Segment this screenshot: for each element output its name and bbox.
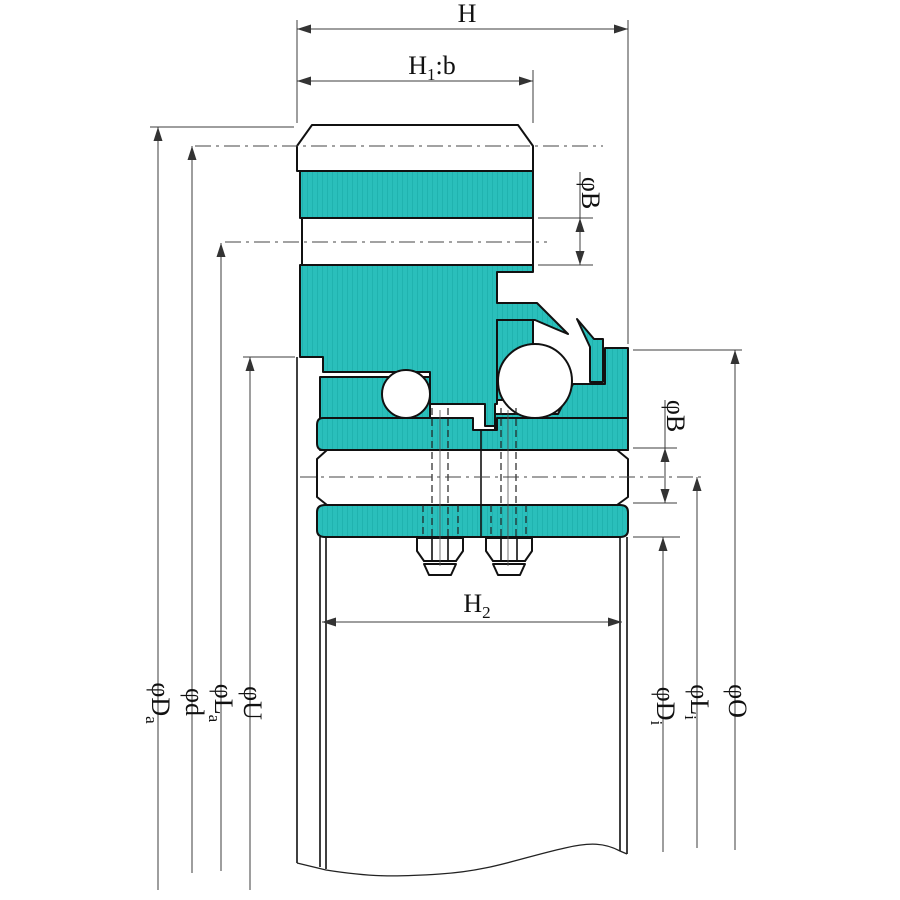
- dimension-phi-b-bottom: φB: [633, 400, 690, 503]
- dim-label-phi-b-bottom: φB: [661, 400, 690, 432]
- dim-label-h1-b: H1:b: [408, 51, 456, 84]
- dimension-h1-b: H1:b: [297, 51, 533, 123]
- dim-label-phi-d: φd: [180, 688, 209, 716]
- arrowhead: [576, 218, 585, 232]
- arrowhead: [576, 251, 585, 265]
- gear-flange-band: [297, 125, 533, 171]
- arrowhead: [614, 25, 628, 34]
- right-wall-lines: [620, 537, 627, 854]
- dimension-phi-d: φd: [180, 146, 209, 873]
- arrowhead: [731, 350, 740, 364]
- dimension-phi-l-a: φLa: [205, 243, 238, 871]
- small-ball: [382, 370, 430, 418]
- arrowhead: [188, 146, 197, 160]
- arrowhead: [661, 489, 670, 503]
- dimension-phi-b-top: φB: [538, 172, 605, 265]
- dim-label-h: H: [458, 0, 477, 28]
- lower-clamp-ring: [317, 505, 628, 537]
- bolt-tip: [493, 564, 525, 575]
- dim-label-phi-d-a: φDa: [142, 682, 175, 724]
- dimension-phi-o: φO: [633, 350, 752, 850]
- dimension-phi-d-i: φDi: [633, 537, 680, 852]
- arrowhead: [297, 77, 311, 86]
- arrowhead: [322, 618, 336, 627]
- dim-label-phi-l-i: φLi: [681, 684, 714, 720]
- dim-label-phi-u: φU: [238, 686, 267, 720]
- arrowhead: [297, 25, 311, 34]
- arrowhead: [519, 77, 533, 86]
- arrowhead: [217, 243, 226, 257]
- drawing-canvas: H H1:b H2 φB φB φDa φd φLa: [0, 0, 900, 900]
- clamp-bolt-2: [486, 538, 532, 575]
- dim-label-phi-o: φO: [723, 684, 752, 718]
- arrowhead: [659, 537, 668, 551]
- arrowhead: [246, 357, 255, 371]
- dim-label-phi-l-a: φLa: [205, 684, 238, 723]
- dimension-phi-u: φU: [238, 357, 295, 890]
- bearing-drawing: H H1:b H2 φB φB φDa φd φLa: [0, 0, 900, 900]
- large-ball: [498, 344, 572, 418]
- dimension-phi-l-i: φLi: [681, 477, 714, 848]
- dim-label-h2: H2: [463, 589, 490, 622]
- inner-ring-clamp-band: [317, 418, 628, 450]
- seal-lip-blade: [577, 319, 603, 382]
- dim-label-phi-d-i: φDi: [647, 687, 680, 726]
- arrowhead: [693, 477, 702, 491]
- break-line: [297, 844, 627, 876]
- left-wall-lines: [320, 537, 326, 869]
- arrowhead: [154, 127, 163, 141]
- bolt-hex-head: [486, 538, 532, 561]
- dimension-phi-d-a: φDa: [142, 127, 294, 890]
- dim-label-phi-b-top: φB: [576, 177, 605, 209]
- arrowhead: [661, 448, 670, 462]
- upper-seal-ring: [300, 171, 533, 218]
- dimension-h2: H2: [322, 589, 622, 627]
